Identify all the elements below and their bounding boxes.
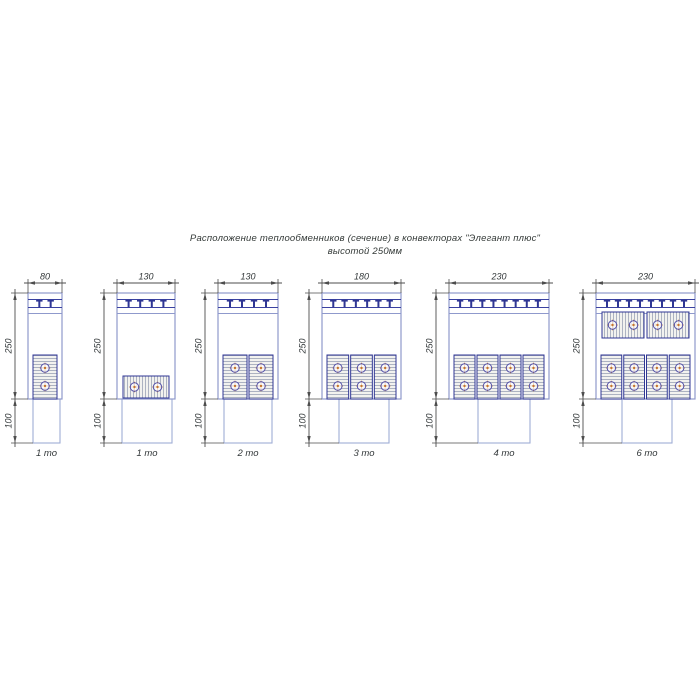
duct-height-dimension-label: 100 bbox=[298, 413, 308, 428]
duct-outline bbox=[33, 399, 60, 443]
convector-section-1: 802501001 то bbox=[4, 272, 67, 460]
duct-height-dimension-label: 100 bbox=[572, 413, 582, 428]
heat-exchanger bbox=[601, 355, 622, 399]
heat-exchanger bbox=[374, 355, 396, 399]
variant-caption: 1 то bbox=[136, 448, 157, 459]
heat-exchanger bbox=[454, 355, 475, 399]
variant-caption: 1 то bbox=[36, 448, 57, 459]
heat-exchanger bbox=[500, 355, 521, 399]
duct-height-dimension-label: 100 bbox=[93, 413, 103, 428]
width-dimension-label: 230 bbox=[490, 272, 506, 282]
duct-outline bbox=[224, 399, 272, 443]
convector-section-4: 1802501003 то bbox=[298, 272, 406, 460]
width-dimension-label: 230 bbox=[637, 272, 653, 282]
heat-exchanger bbox=[223, 355, 247, 399]
heat-exchanger bbox=[249, 355, 273, 399]
variant-caption: 3 то bbox=[353, 448, 374, 459]
duct-outline bbox=[478, 399, 530, 443]
variant-caption: 2 то bbox=[236, 448, 258, 459]
width-dimension-label: 130 bbox=[240, 272, 255, 282]
duct-outline bbox=[622, 399, 672, 443]
duct-height-dimension-label: 100 bbox=[194, 413, 204, 428]
width-dimension: 80 bbox=[24, 272, 66, 294]
duct-outline bbox=[339, 399, 389, 443]
heat-exchanger-bank-vertical bbox=[33, 355, 57, 399]
width-dimension: 130 bbox=[113, 272, 179, 294]
convector-section-2: 1302501001 то bbox=[93, 272, 180, 460]
height-dimension-label: 250 bbox=[425, 338, 435, 354]
duct-height-dimension-label: 100 bbox=[425, 413, 435, 428]
height-dimension-label: 250 bbox=[93, 338, 103, 354]
width-dimension: 230 bbox=[592, 272, 699, 294]
heat-exchanger bbox=[523, 355, 544, 399]
heat-exchanger bbox=[327, 355, 349, 399]
width-dimension: 130 bbox=[214, 272, 282, 294]
height-dimension-label: 250 bbox=[572, 338, 582, 354]
height-dimension-label: 250 bbox=[194, 338, 204, 354]
heat-exchanger bbox=[351, 355, 373, 399]
convector-section-5: 2302501004 то bbox=[425, 272, 554, 460]
heat-exchanger bbox=[33, 355, 57, 399]
convector-sections-canvas: 802501001 то1302501001 то1302501002 то18… bbox=[0, 0, 700, 700]
variant-caption: 4 то bbox=[493, 448, 514, 459]
duct-outline bbox=[122, 399, 172, 443]
heat-exchanger bbox=[647, 355, 668, 399]
height-dimension-label: 250 bbox=[4, 338, 14, 354]
heat-exchanger bbox=[669, 355, 690, 399]
width-dimension: 180 bbox=[318, 272, 405, 294]
heat-exchanger-bank-vertical bbox=[327, 355, 396, 399]
variant-caption: 6 то bbox=[636, 448, 657, 459]
technical-drawing-page: Расположение теплообменников (сечение) в… bbox=[0, 0, 700, 700]
width-dimension-label: 180 bbox=[354, 272, 369, 282]
width-dimension-label: 130 bbox=[138, 272, 153, 282]
height-dimension-label: 250 bbox=[298, 338, 308, 354]
convector-section-6: 2302501006 то bbox=[572, 272, 700, 460]
heat-exchanger-bank-horizontal bbox=[123, 376, 169, 398]
width-dimension-label: 80 bbox=[40, 272, 50, 282]
convector-section-3: 1302501002 то bbox=[194, 272, 283, 460]
width-dimension: 230 bbox=[445, 272, 553, 294]
heat-exchanger bbox=[624, 355, 645, 399]
duct-height-dimension-label: 100 bbox=[4, 413, 14, 428]
heat-exchanger bbox=[477, 355, 498, 399]
